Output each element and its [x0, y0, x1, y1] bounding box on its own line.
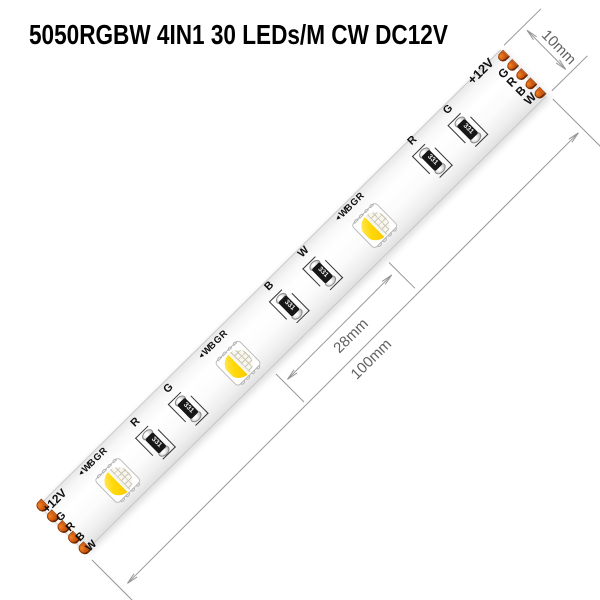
- svg-text:28mm: 28mm: [330, 315, 372, 356]
